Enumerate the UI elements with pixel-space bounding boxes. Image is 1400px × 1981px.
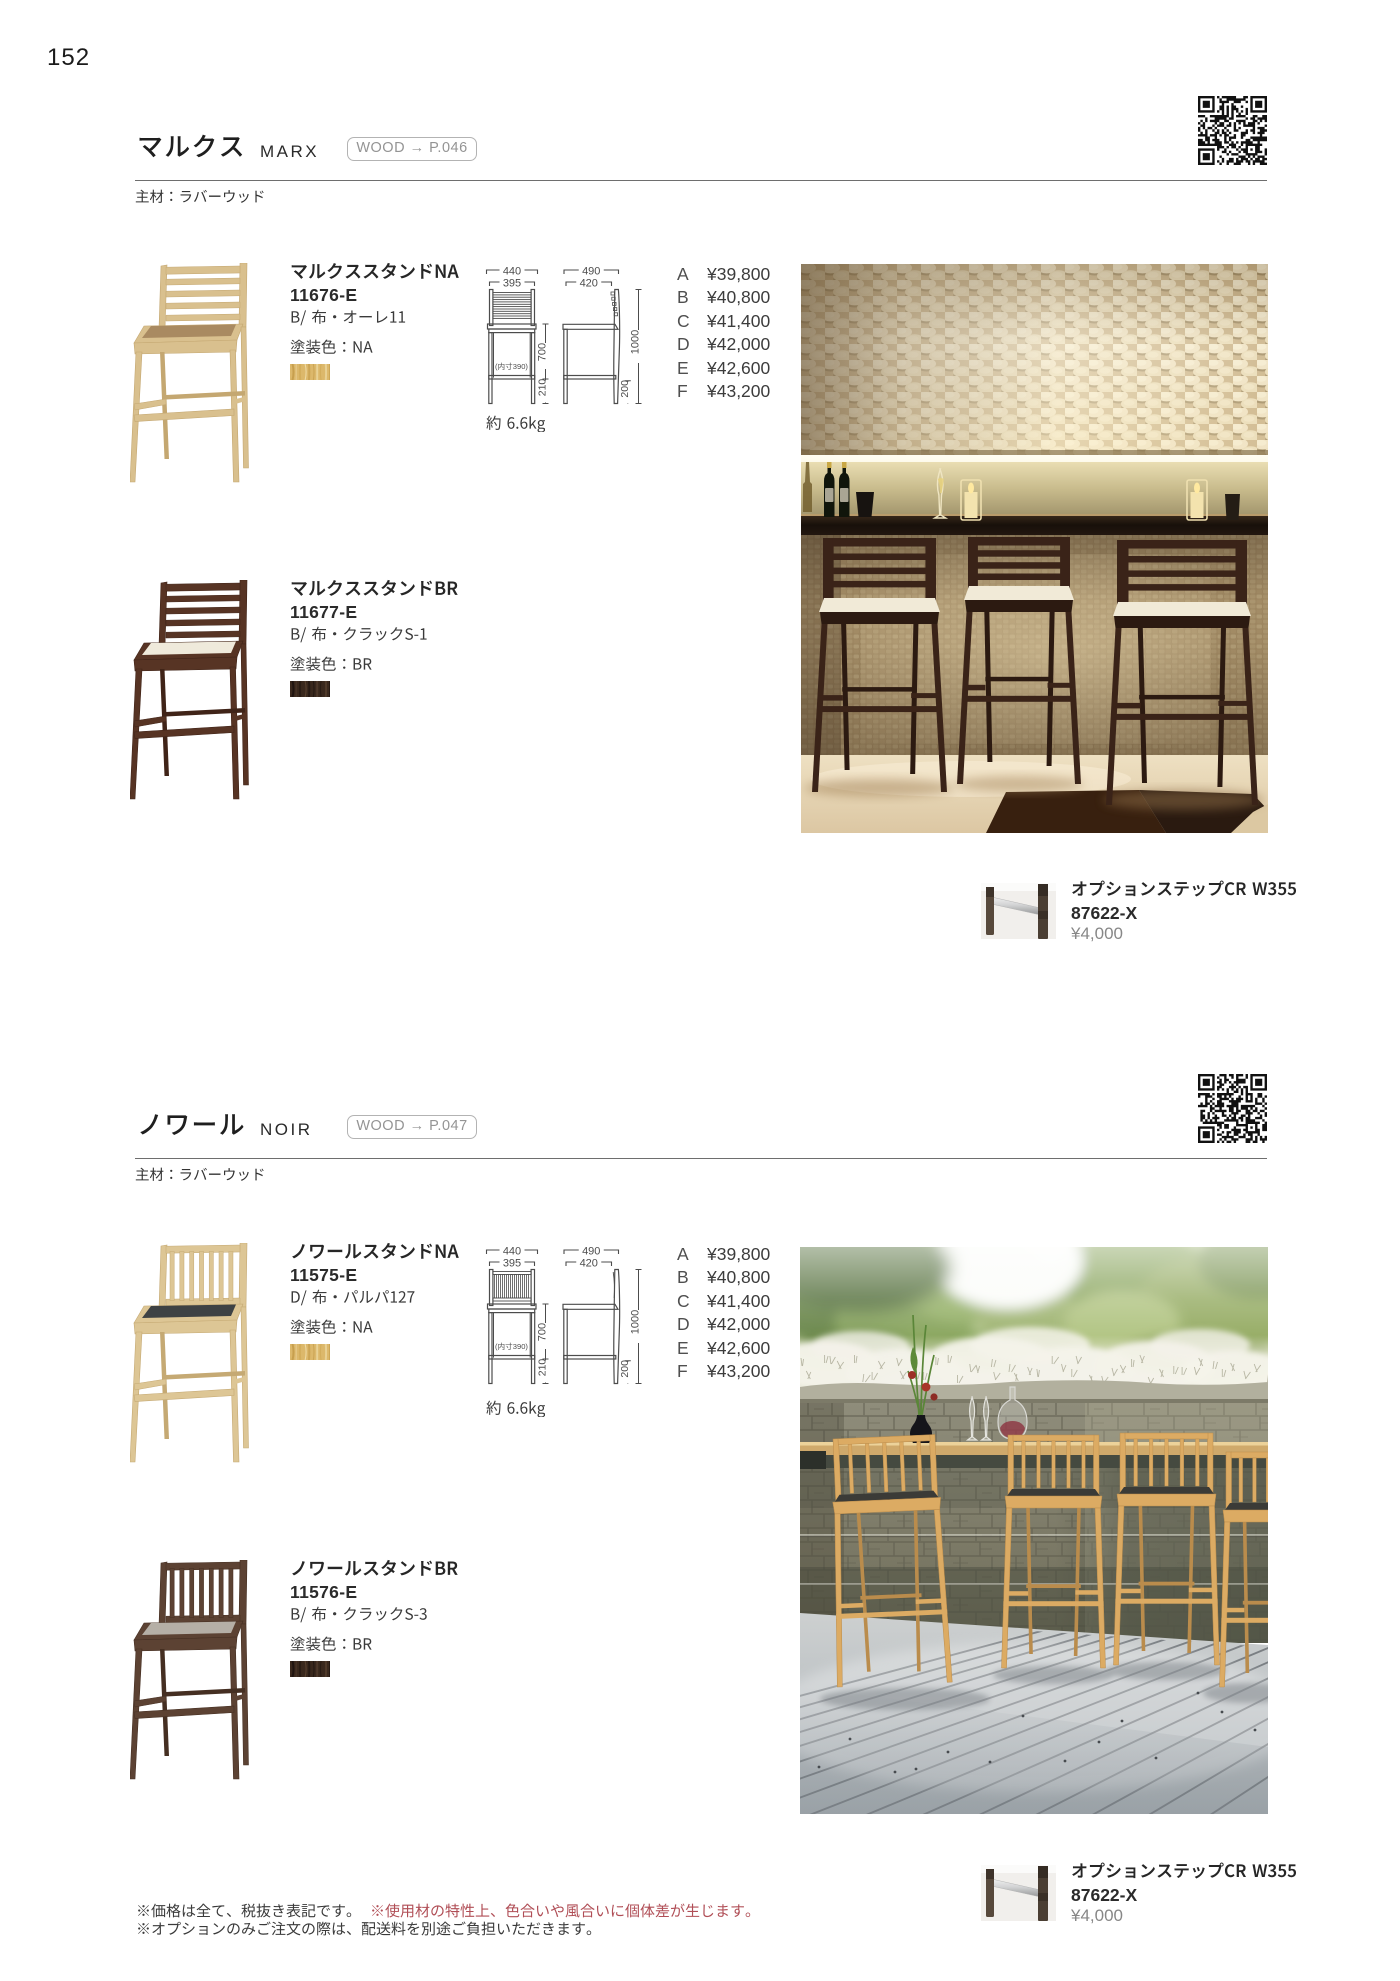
svg-text:440: 440 bbox=[503, 1246, 521, 1258]
svg-text:440: 440 bbox=[503, 266, 521, 278]
svg-text:395: 395 bbox=[503, 278, 521, 290]
svg-text:200: 200 bbox=[619, 1360, 631, 1378]
svg-text:395: 395 bbox=[503, 1258, 521, 1270]
svg-text:420: 420 bbox=[580, 278, 598, 290]
svg-text:490: 490 bbox=[582, 266, 600, 278]
svg-text:700: 700 bbox=[537, 1323, 549, 1341]
svg-text:(内寸390): (内寸390) bbox=[495, 361, 528, 371]
svg-text:490: 490 bbox=[582, 1246, 600, 1258]
svg-text:700: 700 bbox=[537, 343, 549, 361]
svg-text:1000: 1000 bbox=[630, 330, 642, 354]
svg-text:210: 210 bbox=[537, 379, 549, 397]
svg-text:210: 210 bbox=[537, 1359, 549, 1377]
svg-text:(内寸390): (内寸390) bbox=[495, 1341, 528, 1351]
svg-text:420: 420 bbox=[580, 1258, 598, 1270]
svg-text:1000: 1000 bbox=[630, 1310, 642, 1334]
svg-text:200: 200 bbox=[619, 380, 631, 398]
